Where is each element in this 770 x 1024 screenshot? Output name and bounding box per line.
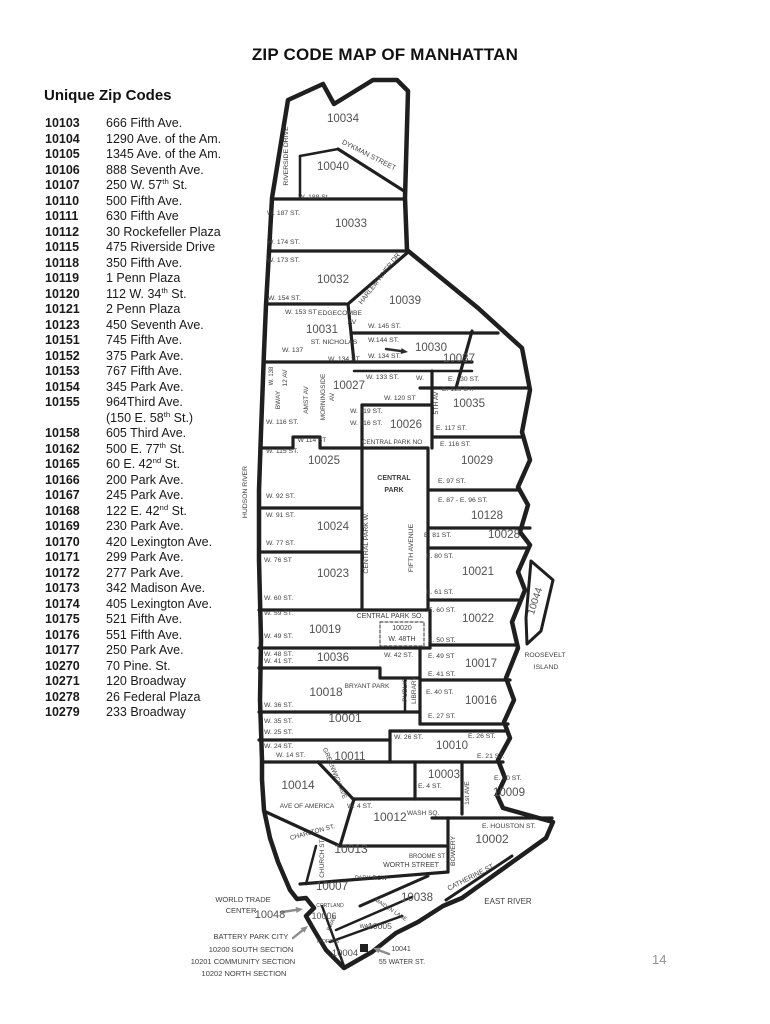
map-label-10007: 10007 — [316, 881, 348, 893]
map-label-w-59-st: W. 59 ST. — [264, 610, 293, 617]
map-label-w-77-st: W. 77 ST. — [266, 540, 295, 547]
map-label-w-137: W. 137 — [282, 347, 303, 354]
map-label-library: LIBRARY — [411, 675, 418, 703]
map-label-central-park-no: CENTRAL PARK NO — [362, 439, 423, 446]
map-label-10041: 10041 — [391, 946, 411, 953]
map-label-10020: 10020 — [392, 625, 412, 632]
map-label-e-50-st: E. 50 ST. — [428, 637, 456, 644]
map-label-10031: 10031 — [306, 324, 338, 336]
map-label-morningside: MORNINGSIDE — [320, 373, 327, 420]
map-label-10009: 10009 — [493, 787, 525, 799]
map-label-10200-south-section: 10200 SOUTH SECTION — [209, 945, 294, 954]
map-label-cortland: CORTLAND — [316, 903, 344, 909]
map-label-55-water-st: 55 WATER ST. — [379, 959, 425, 966]
map-label-e-26-st: E. 26 ST. — [468, 733, 496, 740]
map-label-10013: 10013 — [334, 842, 368, 856]
map-label-public: PUBLIC — [402, 678, 409, 702]
map-label-10010: 10010 — [436, 740, 468, 752]
map-arrow — [380, 950, 389, 954]
map-label-10040: 10040 — [317, 161, 349, 173]
map-label-w-76-st: W. 76 ST — [264, 557, 292, 564]
map-label-e-49-st: E. 49 ST — [428, 653, 454, 660]
map-label-bryant-park: BRYANT PARK — [345, 683, 390, 690]
map-label-w-114-st: W 114 ST — [298, 437, 326, 444]
map-label-w-35-st: W. 35 ST. — [264, 718, 293, 725]
map-label-w-41-st: W. 41 ST. — [264, 658, 293, 665]
map-arrow-head — [401, 348, 408, 354]
map-label-10017: 10017 — [465, 658, 497, 670]
map-label-10024: 10024 — [317, 521, 350, 533]
map-label-10023: 10023 — [317, 568, 349, 580]
map-label-hudson-river: HUDSON RIVER — [242, 466, 249, 518]
map-label-e-117-st: E. 117 ST. — [436, 425, 467, 432]
map-label-w-187-st: W. 187 ST. — [267, 210, 300, 217]
map-label-w-188-st: W. 188 St — [298, 194, 328, 201]
map-label-10004: 10004 — [332, 948, 358, 959]
map-label-10003: 10003 — [428, 769, 460, 781]
map-label-e-27-st: E. 27 ST. — [428, 713, 456, 720]
map-label-e-40-st: E. 40 ST. — [426, 689, 454, 696]
map-label-10002: 10002 — [475, 832, 509, 846]
map-label-10027: 10027 — [333, 380, 365, 392]
map-label-roosevelt: ROOSEVELT — [524, 652, 565, 659]
map-label-central-park-w: CENTRAL PARK W. — [363, 512, 370, 573]
map-label-w-116-st: W. 116 ST. — [350, 420, 382, 427]
map-label-w-60-st: W. 60 ST. — [264, 595, 293, 602]
map-label-w-134-st: W. 134 ST — [328, 356, 360, 363]
map-label-w-119-st: W. 119 ST. — [350, 408, 382, 415]
map-label-10036: 10036 — [317, 652, 349, 664]
map-label-w-49-st: W. 49 ST. — [264, 633, 293, 640]
map-label-ave-of-america: AVE OF AMERICA — [280, 803, 335, 810]
map-label-w-154-st: W. 154 ST. — [268, 295, 301, 302]
map-label-e-houston-st: E. HOUSTON ST. — [482, 823, 536, 830]
map-label-e-80-st: E. 80 ST. — [426, 553, 454, 560]
map-label-10022: 10022 — [462, 613, 494, 625]
map-label-10014: 10014 — [281, 778, 315, 792]
map-label-10019: 10019 — [309, 624, 341, 636]
map-label-w: W. — [416, 375, 424, 382]
map-label-w-42-st: W. 42 ST. — [384, 652, 413, 659]
map-label-w-144-st: W.144 ST. — [368, 337, 399, 344]
map-label-10038: 10038 — [401, 892, 433, 904]
map-label-10026: 10026 — [390, 419, 422, 431]
map-label-w-153-st: W. 153 ST — [285, 309, 317, 316]
map-label-bway: BWAY — [275, 390, 282, 409]
map-label-morris: MORRIS — [317, 939, 339, 945]
map-label-10028: 10028 — [488, 529, 520, 541]
map-label-5th-av: 5TH AV — [433, 391, 440, 414]
map-label-church-st: CHURCH ST. — [319, 838, 326, 878]
map-label-e-20-st: E. 20 ST. — [494, 775, 522, 782]
map-label-w-173-st: W. 173 ST. — [267, 257, 300, 264]
map-label-w-116-st: W. 116 ST. — [266, 419, 298, 426]
map-label-10021: 10021 — [462, 566, 494, 578]
map-label-e-81-st: E. 81 ST. — [424, 532, 452, 539]
map-label-park-row: PARK ROW — [355, 876, 388, 882]
map-label-edgecombe: EDGECOMBE — [318, 310, 363, 317]
map-label-10012: 10012 — [373, 810, 407, 824]
map-label-av: AV — [329, 392, 336, 401]
map-label-10128: 10128 — [471, 510, 503, 522]
map-arrow-head — [296, 907, 303, 913]
map-label-w-174-st: W. 174 ST. — [267, 239, 300, 246]
map-label-st-nicholas: ST. NICHOLAS — [311, 339, 358, 346]
map-label-e-129-st: E. 129 ST. — [442, 386, 473, 393]
map-label-w-4-st: W. 4 ST. — [347, 803, 372, 810]
map-label-battery-park-city: BATTERY PARK CITY — [214, 932, 289, 941]
map-label-e-97-st: E. 97 ST. — [438, 478, 466, 485]
map-label-10033: 10033 — [335, 218, 367, 230]
map-marker-square — [360, 944, 368, 952]
map-label-bowery: BOWERY — [450, 835, 457, 866]
map-label-w-48th: W. 48TH — [388, 636, 415, 643]
map-label-wash-sq: WASH SQ. — [407, 810, 439, 817]
map-label-w-134-st: W. 134 ST. — [368, 353, 401, 360]
map-label-e-116-st: E. 116 ST. — [440, 441, 471, 448]
map-label-worth-street: WORTH STREET — [383, 862, 440, 869]
map-label-e-60-st: E. 60 ST. — [428, 607, 456, 614]
map-label-10032: 10032 — [317, 274, 349, 286]
map-label-amst-av: AMST AV — [303, 386, 310, 414]
map-label-central-park-so: CENTRAL PARK SO. — [357, 613, 424, 620]
map-label-10048: 10048 — [255, 909, 286, 921]
map-label-10202-north-section: 10202 NORTH SECTION — [202, 969, 287, 978]
map-label-w-91-st: W. 91 ST. — [266, 512, 295, 519]
document-page: ZIP CODE MAP OF MANHATTAN Unique Zip Cod… — [0, 0, 770, 1024]
map-arrow — [293, 930, 303, 938]
manhattan-zipcode-map: 1003410040100331003210039100311003010037… — [0, 0, 770, 1024]
map-label-w-133-st: W. 133 ST. — [366, 374, 399, 381]
map-label-e-87-e-96-st: E. 87 - E. 96 ST. — [438, 497, 488, 504]
map-arrow — [386, 349, 401, 351]
map-label-e-130-st: E. 130 ST. — [448, 376, 479, 383]
map-boundary — [300, 149, 338, 156]
map-label-12-av: 12 AV — [282, 369, 289, 387]
map-label-10035: 10035 — [453, 398, 485, 410]
map-label-broome-st: BROOME ST — [409, 854, 445, 860]
map-label-10001: 10001 — [328, 711, 362, 725]
map-label-w-24-st: W. 24 ST. — [264, 743, 293, 750]
map-label-10011: 10011 — [334, 751, 365, 763]
map-label-10025: 10025 — [308, 455, 340, 467]
map-label-10018: 10018 — [309, 685, 343, 699]
page-number: 14 — [652, 952, 666, 967]
map-label-central: CENTRAL — [377, 475, 411, 482]
map-boundary — [362, 448, 428, 610]
map-label-center: CENTER — [226, 906, 257, 915]
map-label-10029: 10029 — [461, 455, 493, 467]
map-boundary — [306, 846, 316, 884]
map-label-east-river: EAST RIVER — [484, 897, 532, 906]
map-label-world-trade: WORLD TRADE — [215, 895, 270, 904]
map-label-w-25-st: W. 25 ST. — [264, 729, 293, 736]
map-label-10037: 10037 — [443, 353, 475, 365]
map-label-1st-ave: 1st AVE — [464, 781, 471, 805]
map-label-10201-community-section: 10201 COMMUNITY SECTION — [191, 957, 295, 966]
map-label-fifth-avenue: FIFTH AVENUE — [408, 523, 415, 572]
map-label-10016: 10016 — [465, 695, 497, 707]
map-label-e-4-st: E. 4 ST. — [418, 783, 442, 790]
map-label-wall: WALL — [360, 924, 375, 930]
map-label-e-61-st: E. 61 ST. — [426, 589, 454, 596]
map-label-10039: 10039 — [389, 295, 421, 307]
map-boundary — [259, 668, 420, 678]
map-label-w-14-st: W. 14 ST. — [276, 752, 305, 759]
map-label-av: AV — [348, 319, 357, 326]
map-label-w-145-st: W. 145 ST. — [368, 323, 401, 330]
map-label-w-48-st: W. 48 ST. — [264, 651, 293, 658]
map-label-w-115-st: W. 115 ST. — [266, 448, 298, 455]
map-label-e-21-st: E. 21 ST. — [477, 753, 505, 760]
map-label-w-138: W. 138 — [269, 366, 275, 385]
map-label-riverside-drive: RIVERSIDE DRIVE — [283, 126, 290, 186]
map-label-e-41-st: E. 41 ST. — [428, 671, 456, 678]
map-label-w-92-st: W. 92 ST. — [266, 493, 295, 500]
map-label-island: ISLAND — [534, 664, 559, 671]
map-label-w-120-st: W. 120 ST — [384, 395, 416, 402]
map-label-10034: 10034 — [327, 113, 360, 125]
map-label-w-36-st: W. 36 ST. — [264, 702, 293, 709]
map-label-park: PARK — [384, 487, 403, 494]
map-label-w-26-st: W. 26 ST. — [394, 734, 423, 741]
